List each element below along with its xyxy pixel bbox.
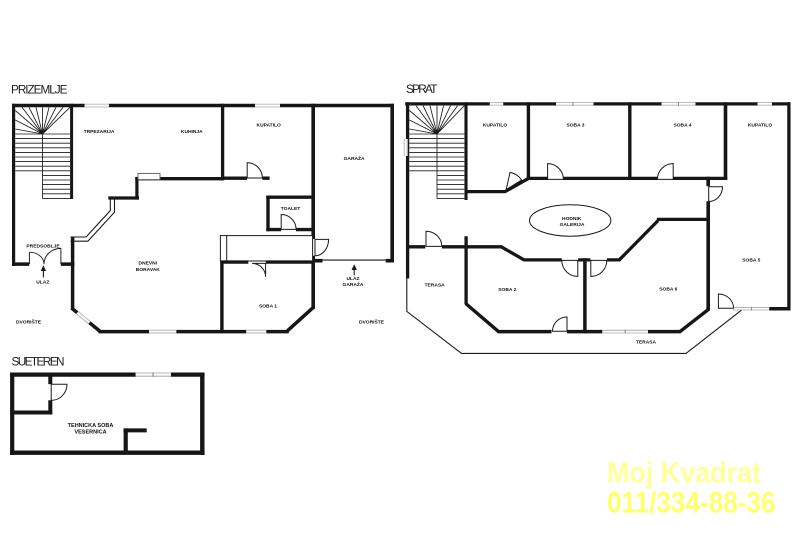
svg-text:SOBA 2: SOBA 2 [498,287,516,293]
svg-text:ULAZ: ULAZ [346,276,359,282]
svg-text:KUPATILO: KUPATILO [748,122,772,128]
svg-text:SOBA 3: SOBA 3 [566,122,584,128]
svg-text:HODNIK: HODNIK [562,216,582,222]
svg-text:KUPATILO: KUPATILO [257,122,281,128]
svg-text:TERASA: TERASA [425,282,446,288]
svg-text:PRIZEMLJE: PRIZEMLJE [11,83,68,97]
svg-text:SPRAT: SPRAT [406,82,438,96]
svg-text:SOBA 1: SOBA 1 [259,303,277,309]
svg-text:PREDSOBLJE: PREDSOBLJE [26,243,60,249]
svg-text:TRPEZARIJA: TRPEZARIJA [84,129,115,135]
svg-text:TEHNICKA SOBA: TEHNICKA SOBA [68,423,114,429]
svg-text:VESERNICA: VESERNICA [74,430,106,436]
svg-text:011/334-88-36: 011/334-88-36 [607,487,776,520]
svg-text:SOBA 6: SOBA 6 [659,286,677,292]
svg-text:GALERIJA: GALERIJA [560,222,585,228]
svg-text:ULAZ: ULAZ [36,279,49,285]
svg-text:SUETEREN: SUETEREN [12,355,65,369]
svg-text:KUHINJA: KUHINJA [181,129,203,135]
svg-text:DNEVNI: DNEVNI [139,261,158,267]
svg-text:TERASA: TERASA [636,339,657,345]
svg-text:SOBA 5: SOBA 5 [742,258,760,264]
svg-text:Moj Kvadrat: Moj Kvadrat [607,457,761,490]
svg-text:KUPATILO: KUPATILO [483,122,507,128]
svg-text:BORAVAK: BORAVAK [136,267,160,273]
svg-text:SOBA 4: SOBA 4 [673,122,691,128]
svg-text:TOALET: TOALET [281,206,300,212]
